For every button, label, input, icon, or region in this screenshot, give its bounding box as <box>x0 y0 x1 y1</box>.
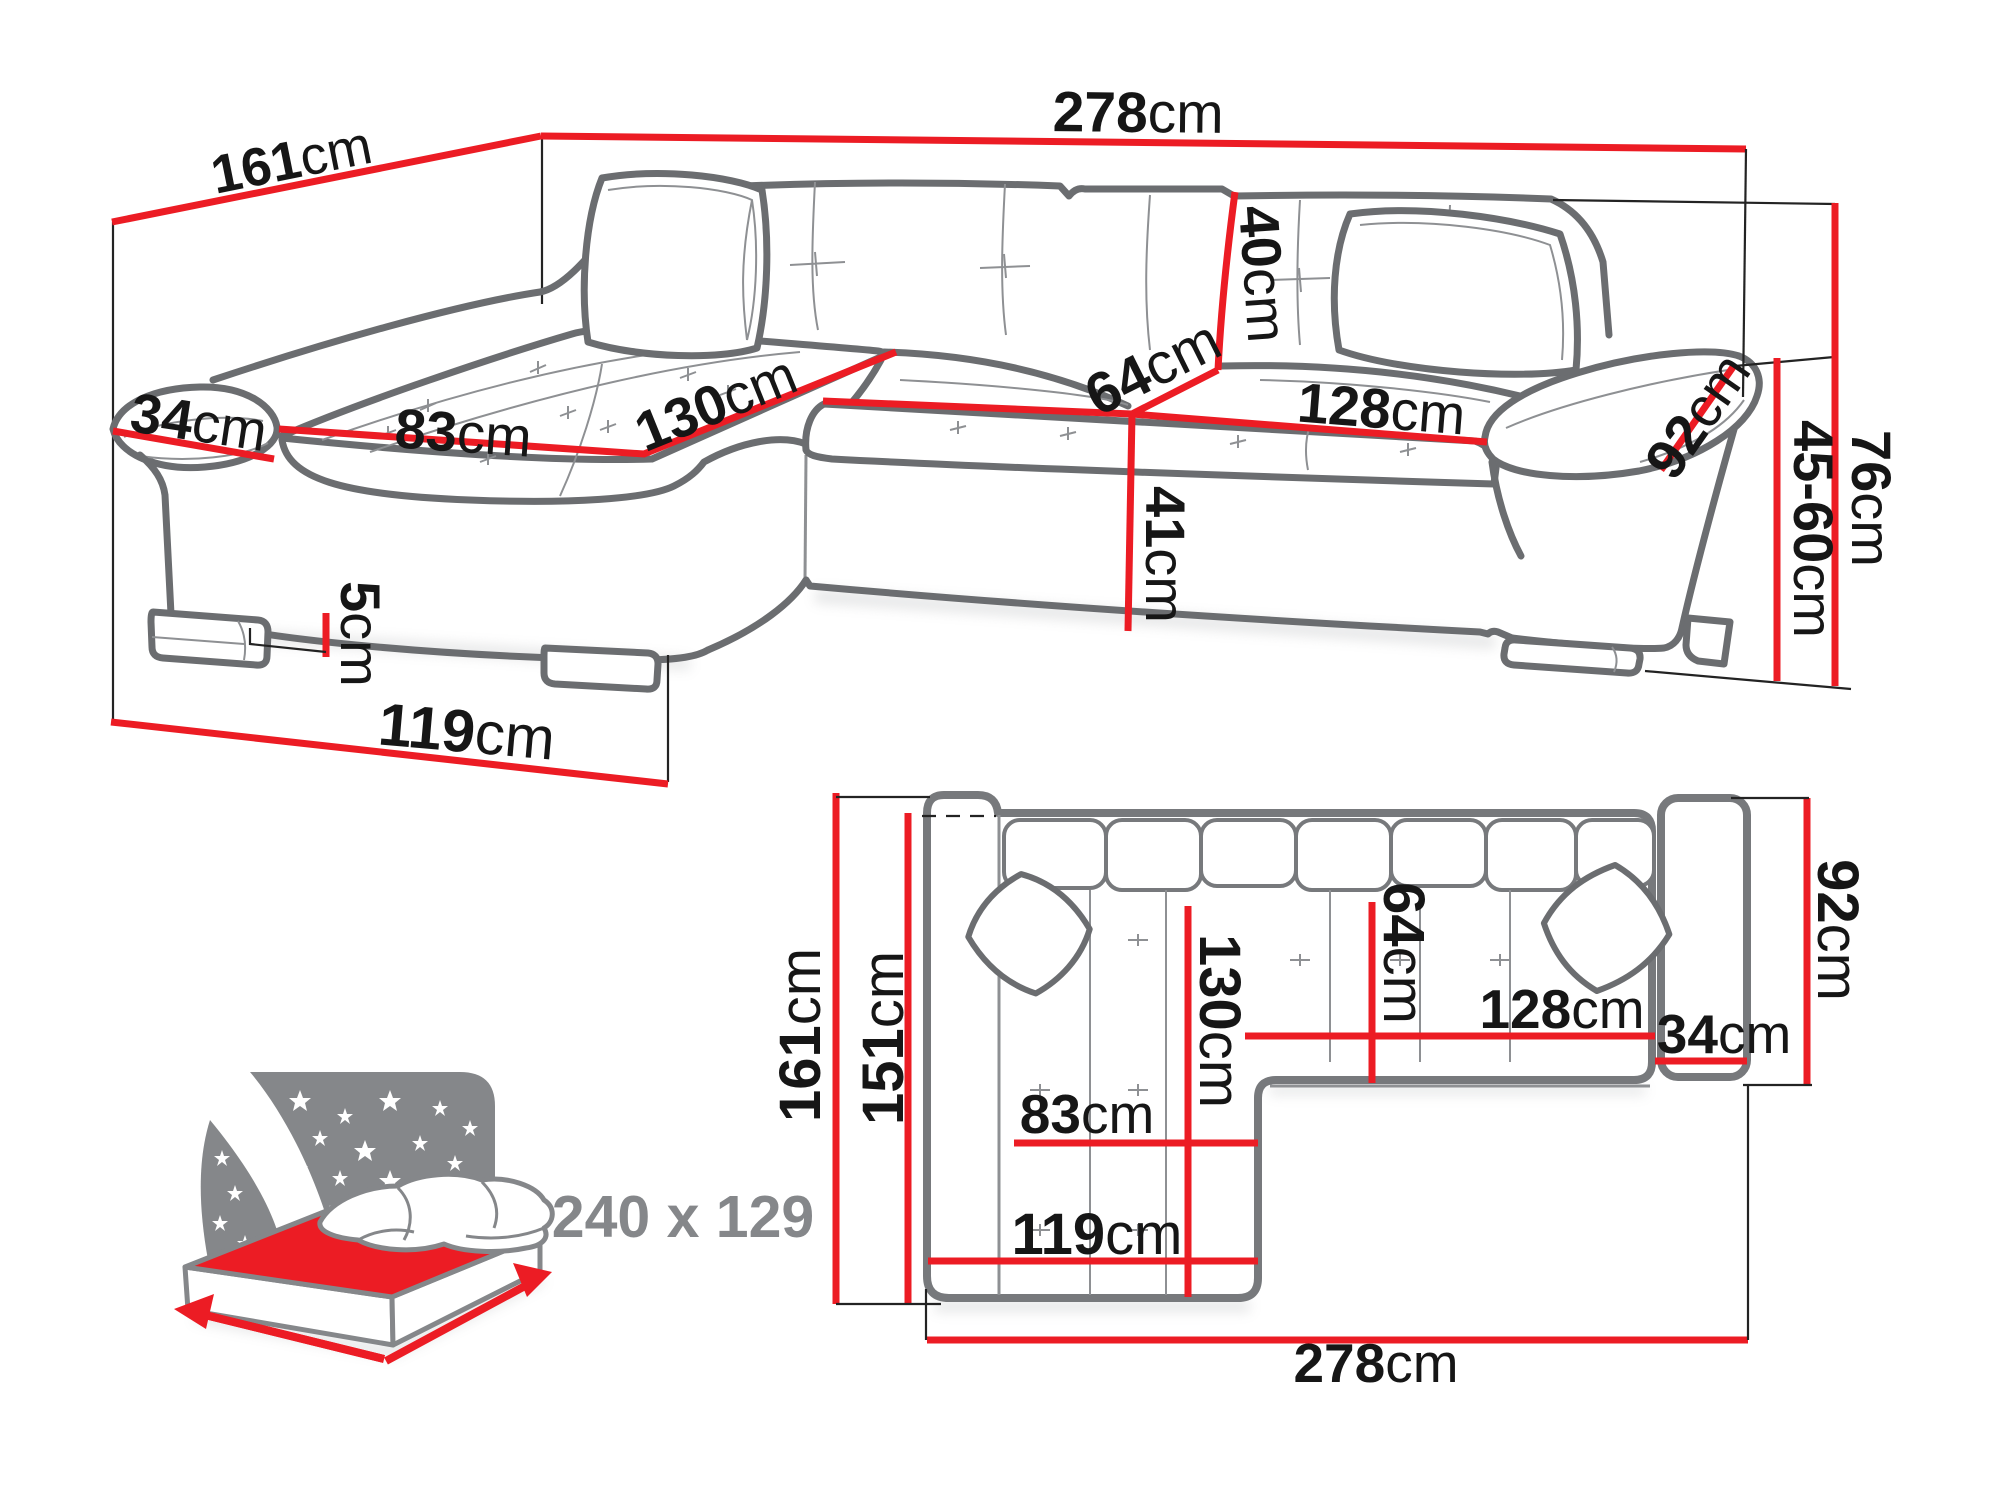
svg-text:240 x 129: 240 x 129 <box>552 1184 814 1250</box>
svg-text:41cm: 41cm <box>1134 486 1197 623</box>
svg-text:128cm: 128cm <box>1295 371 1468 447</box>
svg-text:83cm: 83cm <box>1020 1083 1155 1145</box>
svg-text:76cm: 76cm <box>1840 430 1903 567</box>
svg-text:92cm: 92cm <box>1805 859 1870 1001</box>
svg-text:34cm: 34cm <box>1657 1003 1792 1065</box>
svg-text:278cm: 278cm <box>1052 80 1224 146</box>
svg-text:151cm: 151cm <box>851 951 916 1125</box>
svg-text:5cm: 5cm <box>329 581 392 687</box>
svg-text:278cm: 278cm <box>1293 1332 1458 1394</box>
svg-text:64cm: 64cm <box>1371 882 1436 1024</box>
svg-text:45-60cm: 45-60cm <box>1782 420 1845 638</box>
svg-text:130cm: 130cm <box>1187 934 1252 1108</box>
svg-text:40cm: 40cm <box>1227 203 1299 344</box>
svg-text:83cm: 83cm <box>393 396 534 468</box>
svg-text:128cm: 128cm <box>1479 978 1644 1040</box>
svg-text:161cm: 161cm <box>768 948 833 1122</box>
svg-text:119cm: 119cm <box>1012 1202 1183 1267</box>
